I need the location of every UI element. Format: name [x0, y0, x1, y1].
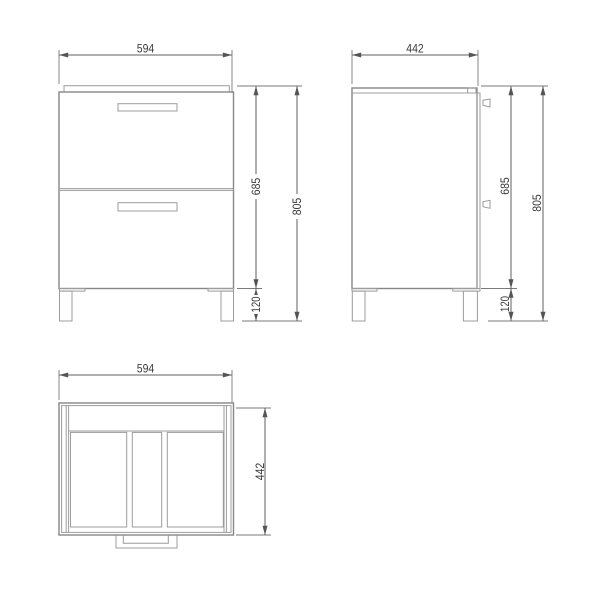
side-handle-bottom: [483, 200, 490, 208]
front-drawer-handle-bottom: [118, 203, 177, 211]
front-height-dimensions: 685 120 805: [237, 86, 304, 321]
top-width-label: 594: [137, 362, 155, 376]
side-depth-dimension: 442: [352, 42, 478, 87]
top-carcass-outline: [62, 406, 231, 533]
side-plinth-height-label: 120: [498, 296, 512, 312]
front-countertop: [64, 86, 229, 92]
side-height-dimensions: 685 120 805: [481, 86, 548, 321]
top-compartment-middle: [132, 432, 161, 527]
front-plinth-height-label: 120: [249, 296, 263, 312]
top-depth-label: 442: [253, 462, 267, 480]
side-cabinet-outline: [352, 88, 490, 321]
side-leg-front: [463, 291, 477, 321]
front-view: 594 685 120 80: [59, 42, 304, 322]
side-overall-height-label: 805: [530, 194, 544, 212]
front-carcass-height-label: 685: [249, 177, 263, 195]
side-depth-label: 442: [406, 42, 424, 56]
top-countertop-outline: [59, 403, 234, 535]
top-compartment-left: [71, 432, 127, 527]
top-handle-inner: [123, 535, 168, 543]
drawing-canvas: 594 685 120 80: [0, 0, 600, 600]
side-countertop-nose: [468, 88, 476, 93]
front-leg-right: [221, 291, 234, 321]
top-width-dimension: 594: [59, 362, 232, 404]
cabinet-technical-drawing: 594 685 120 80: [0, 0, 600, 600]
front-cabinet-outline: [59, 86, 234, 321]
top-cabinet-outline: [59, 403, 234, 548]
side-cabinet-body: [352, 88, 477, 289]
side-leg-back: [352, 291, 365, 321]
top-depth-dimension: 442: [236, 408, 271, 535]
front-overall-height-label: 805: [290, 197, 304, 215]
side-carcass-height-label: 685: [498, 177, 512, 195]
top-compartment-right: [167, 432, 223, 527]
front-leg-left: [60, 291, 73, 321]
front-width-label: 594: [137, 42, 155, 56]
front-drawer-handle-top: [118, 104, 177, 111]
top-view: 594 442: [59, 362, 271, 549]
side-view: 442 685 120 805: [352, 42, 548, 322]
side-handle-top: [483, 99, 490, 107]
side-drawer-front: [477, 93, 480, 289]
